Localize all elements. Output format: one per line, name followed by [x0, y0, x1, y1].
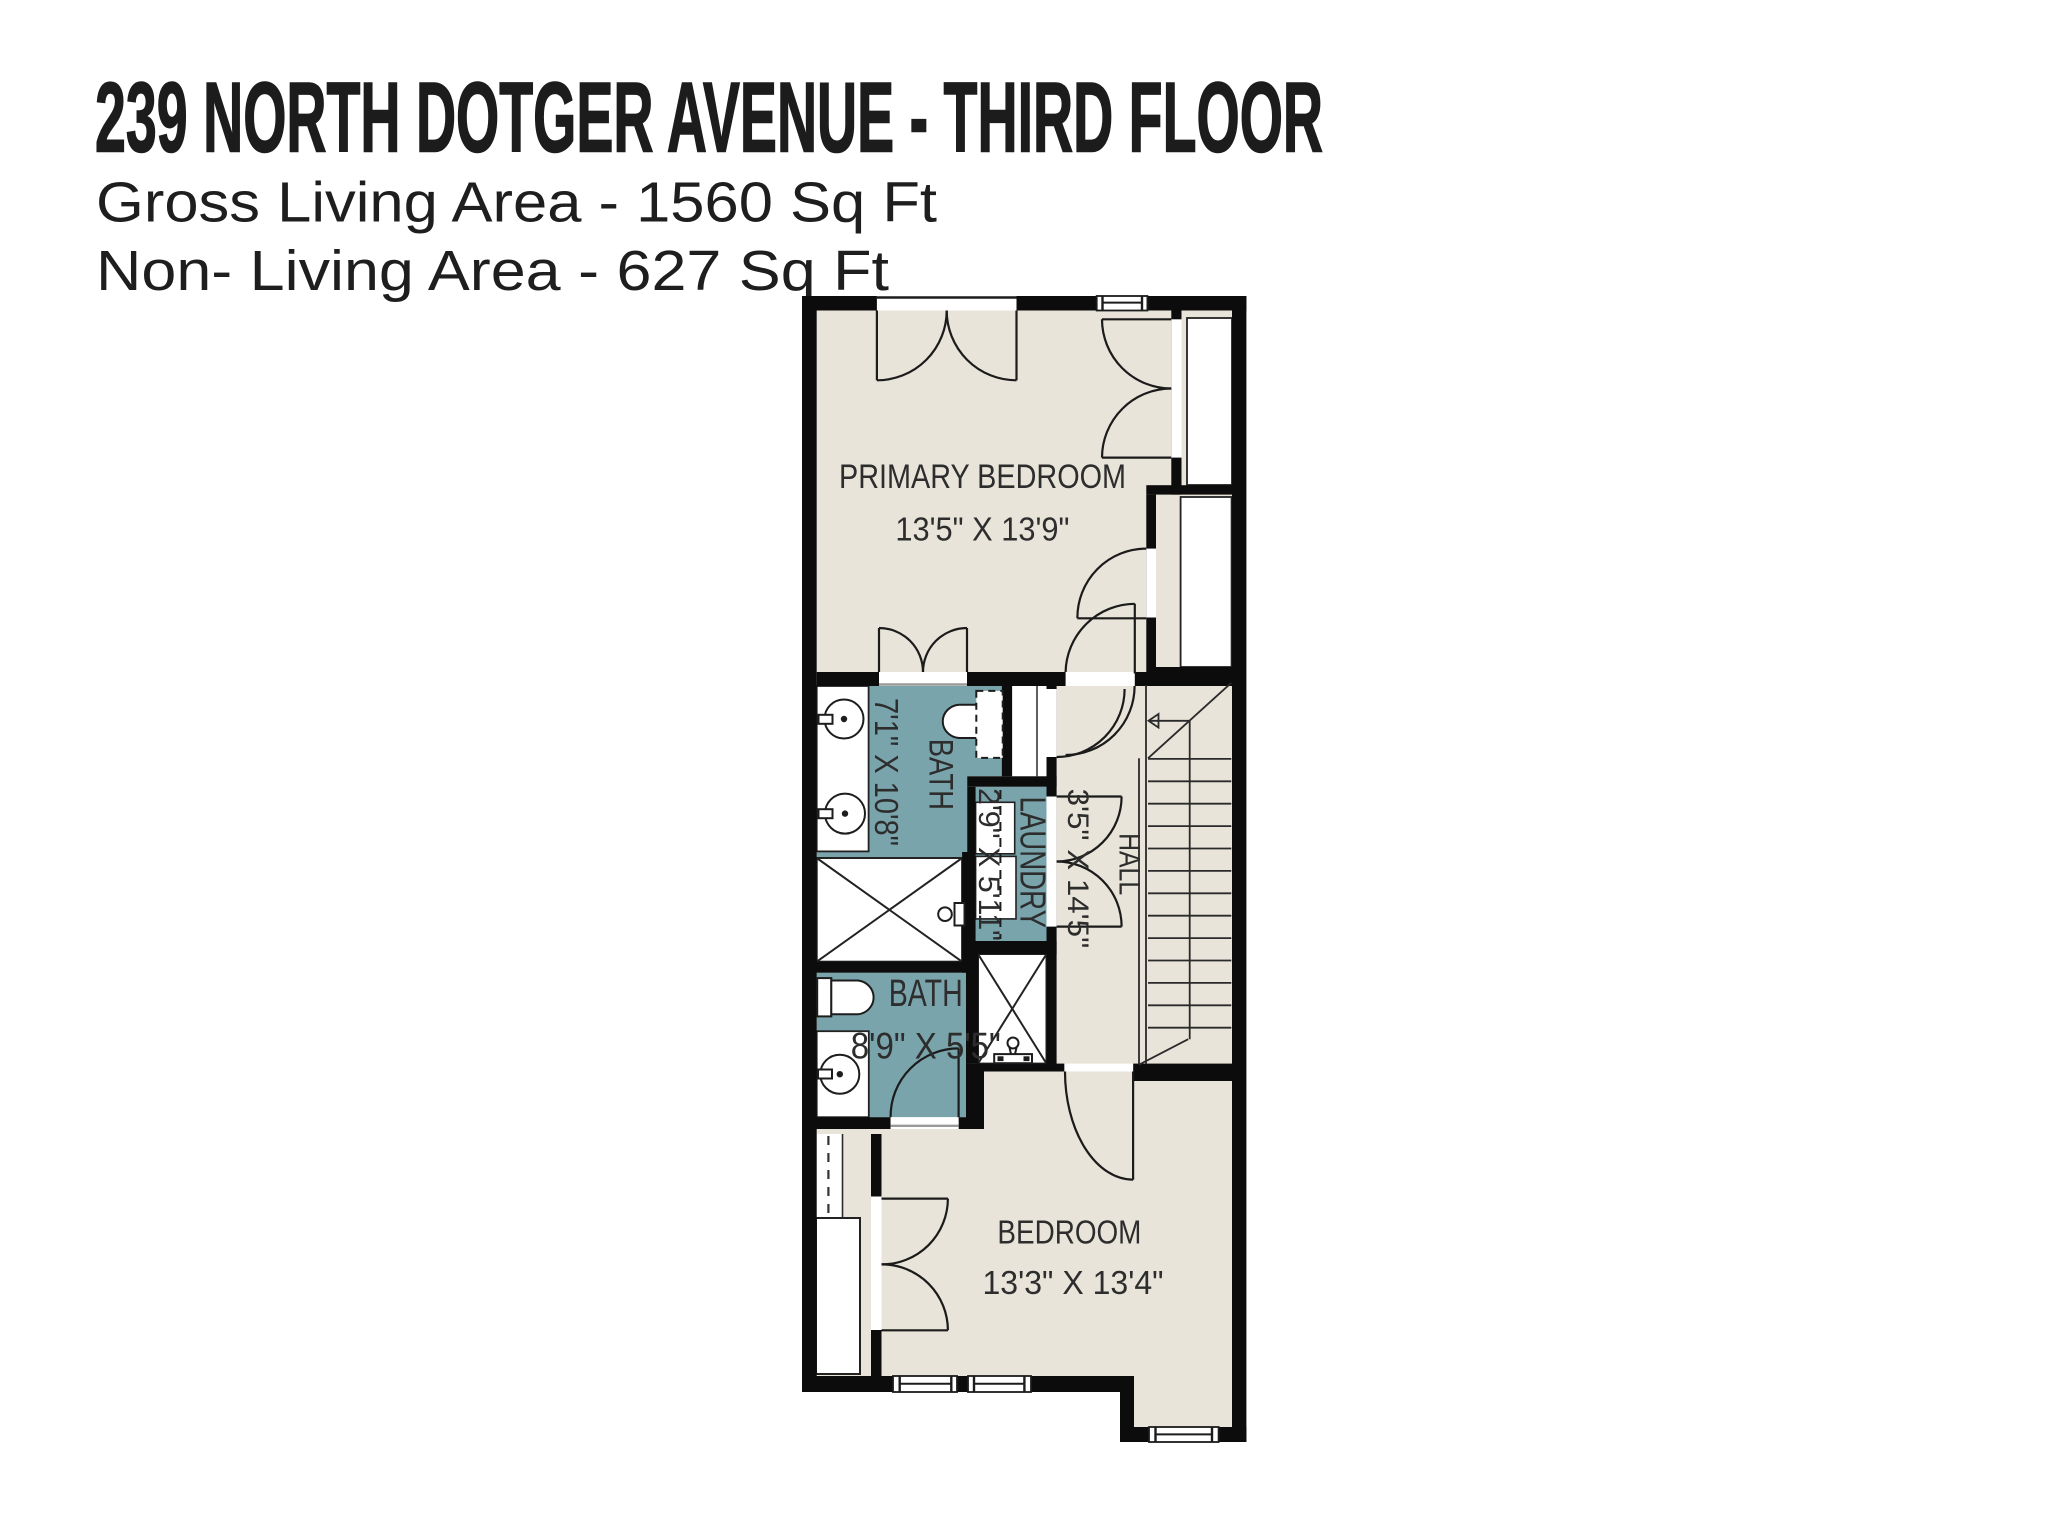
- svg-text:13'5" X 13'9": 13'5" X 13'9": [895, 511, 1069, 548]
- svg-text:BATH: BATH: [889, 973, 963, 1015]
- svg-text:239 NORTH DOTGER AVENUE - THIR: 239 NORTH DOTGER AVENUE - THIRD FLOOR: [95, 62, 1323, 173]
- svg-text:LAUNDRY: LAUNDRY: [1013, 797, 1054, 929]
- svg-text:8'9" X 5'5": 8'9" X 5'5": [851, 1026, 1001, 1067]
- svg-text:13'3" X 13'4": 13'3" X 13'4": [983, 1264, 1164, 1301]
- svg-text:Non- Living Area - 627 Sq Ft: Non- Living Area - 627 Sq Ft: [96, 239, 889, 303]
- svg-text:BATH: BATH: [922, 739, 960, 810]
- svg-text:7'1" X 10'8": 7'1" X 10'8": [868, 698, 905, 846]
- svg-text:PRIMARY BEDROOM: PRIMARY BEDROOM: [839, 458, 1126, 496]
- svg-text:HALL: HALL: [1113, 833, 1146, 895]
- svg-text:2'9" X 5'11": 2'9" X 5'11": [972, 788, 1005, 941]
- svg-text:3'5" X 14'5": 3'5" X 14'5": [1061, 789, 1094, 949]
- svg-text:BEDROOM: BEDROOM: [997, 1214, 1141, 1251]
- svg-text:Gross Living Area - 1560 Sq Ft: Gross Living Area - 1560 Sq Ft: [96, 171, 937, 235]
